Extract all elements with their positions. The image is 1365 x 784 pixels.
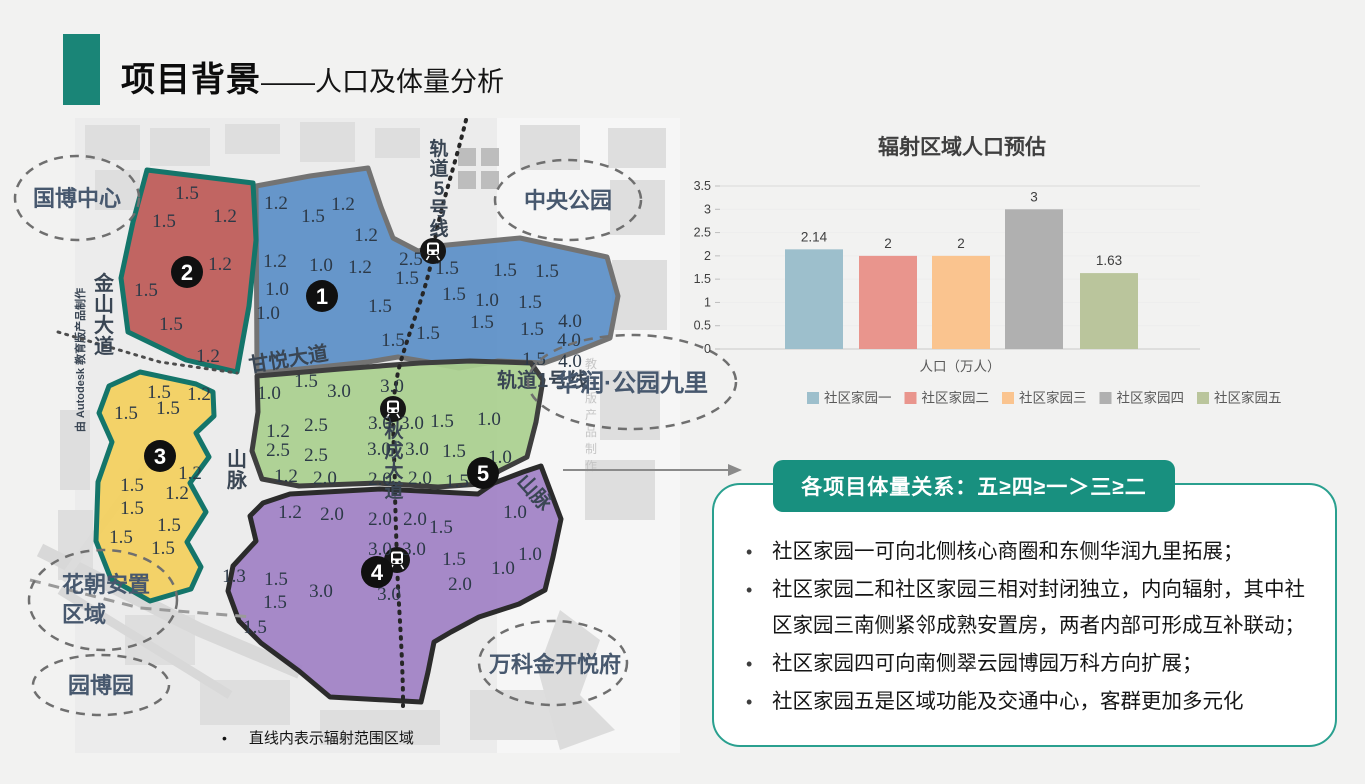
y-tick-label: 0.5 (694, 319, 711, 333)
zone-marker-number: 4 (371, 560, 384, 585)
population-bar-chart: 00.511.522.533.52.142231.63辐射区域人口预估人口（万人… (690, 128, 1350, 420)
map-caption: • 直线内表示辐射范围区域 (222, 727, 414, 748)
landmark-label-guobo: 国博中心 (33, 186, 121, 211)
density-value: 1.2 (354, 225, 378, 246)
density-value: 3.0 (327, 381, 351, 402)
density-value: 1.5 (243, 617, 267, 638)
landmark-label-huachao-1: 花朝安置 (62, 572, 150, 597)
density-value: 2.0 (313, 468, 337, 489)
legend-swatch-icon (807, 392, 819, 404)
bar-value-label: 2.14 (801, 229, 828, 244)
density-value: 1.5 (264, 569, 288, 590)
density-value: 1.5 (470, 312, 494, 333)
volume-relation-banner: 各项目体量关系：五≥四≥一＞三≥二 (773, 460, 1175, 512)
bar-社区家园二 (859, 256, 917, 349)
bullet-dot: • (746, 534, 772, 570)
page-title: 项目背景——人口及体量分析 (121, 52, 504, 101)
landmark-label-zhongyang: 中央公园 (524, 188, 612, 213)
chart-title: 辐射区域人口预估 (878, 135, 1046, 159)
density-value: 1.2 (264, 193, 288, 214)
density-value: 1.5 (157, 515, 181, 536)
density-value: 1.5 (442, 441, 466, 462)
bar-社区家园三 (932, 256, 990, 349)
density-value: 3.0 (309, 581, 333, 602)
legend-swatch-icon (1002, 392, 1014, 404)
y-tick-label: 1 (704, 295, 711, 309)
road-label-shan-left: 山脉 (226, 448, 248, 492)
density-value: 3.0 (400, 413, 424, 434)
density-value: 1.5 (120, 498, 144, 519)
road-label-jinshan: 金山大道 (93, 271, 115, 358)
legend-label: 社区家园五 (1214, 390, 1282, 406)
y-tick-label: 1.5 (694, 272, 711, 286)
y-tick-label: 0 (704, 342, 711, 356)
zone-marker-number: 5 (477, 461, 489, 486)
density-value: 4.0 (558, 311, 582, 332)
note-bullets: •社区家园一可向北侧核心商圈和东侧华润九里拓展；•社区家园二和社区家园三相对封闭… (746, 534, 1318, 722)
density-value: 1.3 (222, 566, 246, 587)
page-title-main: 项目背景 (121, 52, 261, 101)
density-value: 3.0 (405, 439, 429, 460)
density-value: 3.0 (402, 539, 426, 560)
y-tick-label: 2.5 (694, 226, 711, 240)
density-value: 2.5 (399, 249, 423, 270)
density-value: 1.5 (151, 538, 175, 559)
density-value: 2.5 (304, 445, 328, 466)
landmark-label-yuanbo: 园博园 (68, 673, 134, 698)
density-value: 3.0 (380, 376, 404, 397)
density-value: 1.5 (381, 330, 405, 351)
density-value: 1.0 (503, 502, 527, 523)
density-value: 1.2 (213, 206, 237, 227)
density-value: 1.5 (442, 284, 466, 305)
bullet-dot: • (746, 684, 772, 720)
bar-社区家园五 (1080, 273, 1138, 349)
density-value: 1.5 (520, 319, 544, 340)
density-value: 1.0 (477, 409, 501, 430)
arrow-head-icon (728, 464, 742, 476)
density-value: 4.0 (558, 351, 582, 372)
density-value: 1.2 (178, 463, 202, 484)
density-value: 1.5 (429, 517, 453, 538)
density-value: 1.5 (535, 261, 559, 282)
density-value: 1.5 (518, 292, 542, 313)
density-value: 1.5 (114, 403, 138, 424)
density-value: 1.2 (165, 483, 189, 504)
bullet-dot: • (746, 646, 772, 682)
density-value: 1.2 (187, 384, 211, 405)
density-value: 2.0 (368, 469, 392, 490)
note-bullet-item: •社区家园五是区域功能及交通中心，客群更加多元化 (746, 684, 1318, 720)
watermark-left: 由 Autodesk 教育版产品制作 (73, 288, 87, 432)
density-value: 1.5 (301, 206, 325, 227)
bar-value-label: 3 (1030, 189, 1038, 204)
density-value: 1.5 (263, 592, 287, 613)
title-accent-bar (63, 34, 100, 105)
density-value: 1.0 (309, 255, 333, 276)
legend-swatch-icon (1197, 392, 1209, 404)
bar-value-label: 2 (957, 236, 965, 251)
density-value: 1.0 (256, 303, 280, 324)
density-value: 1.0 (257, 383, 281, 404)
density-value: 1.5 (368, 296, 392, 317)
density-value: 1.5 (416, 323, 440, 344)
legend-label: 社区家园四 (1117, 390, 1185, 406)
density-value: 1.0 (491, 558, 515, 579)
zone-marker-number: 2 (181, 260, 193, 285)
density-value: 2.0 (368, 509, 392, 530)
zone-marker-number: 3 (154, 444, 166, 469)
density-value: 1.2 (196, 346, 220, 367)
bar-value-label: 1.63 (1096, 253, 1122, 268)
density-value: 1.0 (475, 290, 499, 311)
density-value: 1.5 (120, 475, 144, 496)
x-axis-label: 人口（万人） (920, 359, 1001, 374)
density-value: 1.5 (109, 527, 133, 548)
density-value: 1.0 (265, 279, 289, 300)
density-value: 1.5 (159, 314, 183, 335)
density-value: 1.5 (442, 549, 466, 570)
bar-社区家园四 (1005, 209, 1063, 349)
density-value: 1.5 (395, 268, 419, 289)
bullet-text: 社区家园一可向北侧核心商圈和东侧华润九里拓展； (772, 534, 1318, 570)
legend-label: 社区家园三 (1019, 390, 1087, 406)
y-tick-label: 3 (704, 202, 711, 216)
y-tick-label: 2 (704, 249, 711, 263)
density-value: 1.2 (278, 502, 302, 523)
density-value: 1.5 (445, 471, 469, 492)
bullet-text: 社区家园四可向南侧翠云园博园万科方向扩展； (772, 646, 1318, 682)
bullet-dot: • (746, 572, 772, 644)
density-value: 1.2 (266, 421, 290, 442)
density-value: 1.2 (263, 251, 287, 272)
bullet-text: 社区家园二和社区家园三相对封闭独立，内向辐射，其中社区家园三南侧紧邻成熟安置房，… (772, 572, 1318, 644)
density-value: 2.0 (320, 504, 344, 525)
landmark-label-huarun: 华润·公园九里 (556, 369, 708, 397)
density-value: 1.5 (134, 280, 158, 301)
density-value: 3.0 (367, 439, 391, 460)
density-value: 1.5 (435, 258, 459, 279)
note-bullet-item: •社区家园二和社区家园三相对封闭独立，内向辐射，其中社区家园三南侧紧邻成熟安置房… (746, 572, 1318, 644)
bar-value-label: 2 (884, 236, 892, 251)
density-value: 2.0 (403, 509, 427, 530)
legend-swatch-icon (1100, 392, 1112, 404)
density-value: 2.0 (408, 468, 432, 489)
analysis-map: 由 Autodesk 教育版产品制作 教育版产品制作 金山大道 甘悦大道 轨道5… (0, 110, 760, 784)
density-value: 2.5 (266, 440, 290, 461)
y-tick-label: 3.5 (694, 179, 711, 193)
density-value: 1.0 (518, 544, 542, 565)
legend-label: 社区家园一 (824, 390, 892, 406)
density-value: 2.5 (304, 415, 328, 436)
bar-社区家园一 (785, 249, 843, 349)
note-bullet-item: •社区家园四可向南侧翠云园博园万科方向扩展； (746, 646, 1318, 682)
density-value: 1.2 (348, 257, 372, 278)
density-value: 1.5 (430, 411, 454, 432)
density-value: 1.5 (294, 371, 318, 392)
density-value: 1.5 (493, 260, 517, 281)
caption-text: 直线内表示辐射范围区域 (249, 727, 414, 748)
density-value: 1.2 (274, 466, 298, 487)
landmark-label-wanke: 万科金开悦府 (488, 652, 621, 677)
legend-label: 社区家园二 (922, 390, 990, 406)
density-value: 1.5 (175, 183, 199, 204)
slide: 项目背景——人口及体量分析 (0, 0, 1365, 784)
density-value: 1.5 (156, 398, 180, 419)
density-value: 2.0 (448, 574, 472, 595)
caption-bullet: • (222, 730, 227, 746)
density-value: 3.0 (368, 413, 392, 434)
note-bullet-item: •社区家园一可向北侧核心商圈和东侧华润九里拓展； (746, 534, 1318, 570)
page-title-sub: ——人口及体量分析 (261, 60, 504, 99)
density-value: 1.5 (152, 211, 176, 232)
zone-marker-number: 1 (316, 284, 328, 309)
density-value: 1.2 (208, 254, 232, 275)
legend-swatch-icon (905, 392, 917, 404)
landmark-label-huachao-2: 区域 (62, 602, 106, 627)
bullet-text: 社区家园五是区域功能及交通中心，客群更加多元化 (772, 684, 1318, 720)
density-value: 1.2 (331, 194, 355, 215)
